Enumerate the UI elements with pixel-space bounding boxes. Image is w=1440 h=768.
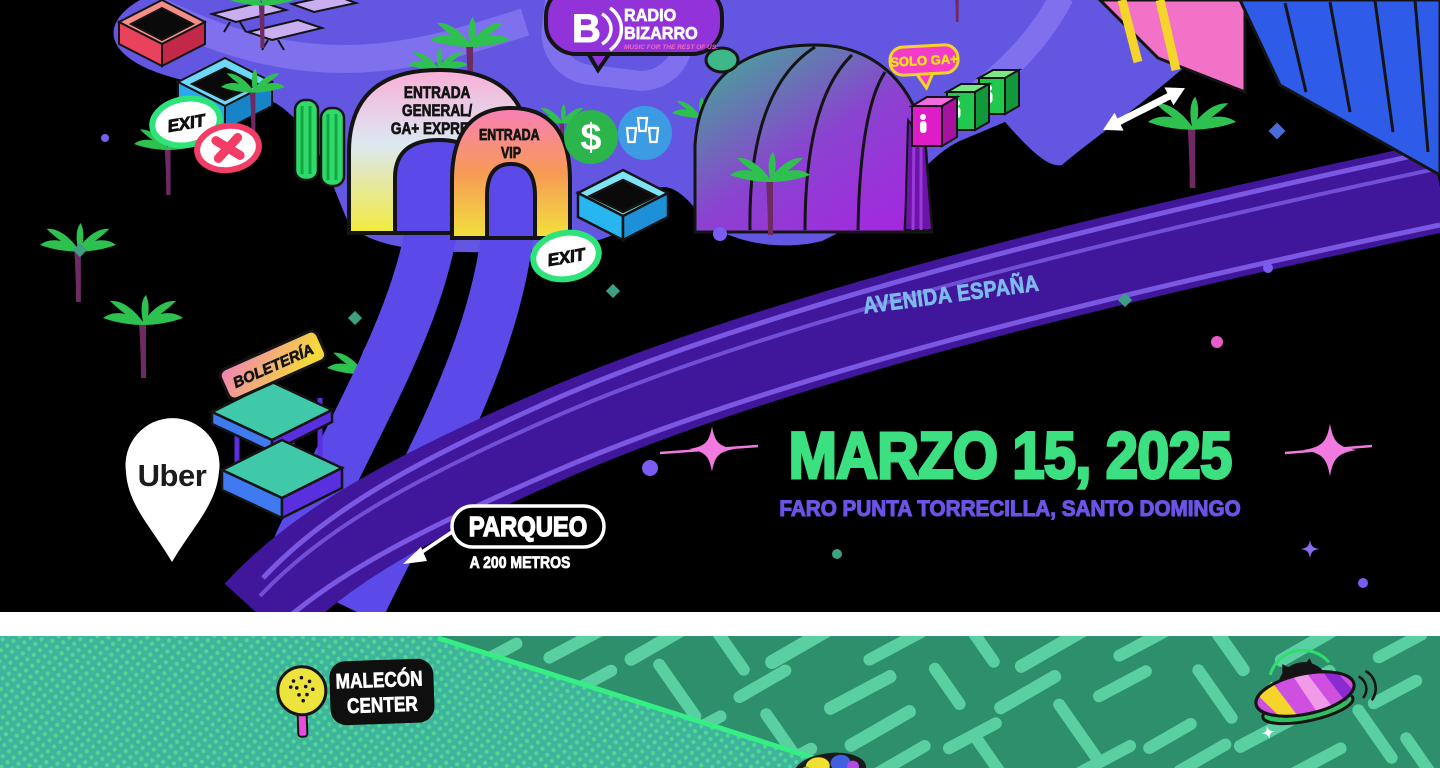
malecon-line2: CENTER (347, 693, 419, 718)
brand-name-line1: RADIO (624, 5, 676, 25)
sparkle-icon-right (1304, 424, 1357, 477)
drinks-icon (618, 106, 672, 160)
brand-logo-letter: B (572, 7, 601, 51)
svg-text:MARZO 15, 2025: MARZO 15, 2025 (789, 420, 1232, 493)
atm-icon: $ (564, 110, 618, 164)
entrance-vip-line1: ENTRADA (479, 126, 540, 144)
small-bubble (706, 48, 738, 72)
entrance-general-line2: GENERAL/ (402, 102, 473, 121)
entrance-general-line1: ENTRADA (404, 84, 470, 103)
entrance-arch-vip: ENTRADA VIP (452, 108, 570, 238)
brand-tagline: MUSIC FOR THE REST OF US. (624, 44, 718, 51)
sparkle-icon-left (689, 426, 735, 472)
boleteria-booth (212, 382, 342, 518)
brand-name-line2: BIZARRO (624, 23, 698, 43)
malecon-line1: MALECÓN (335, 667, 423, 694)
svg-text:FARO PUNTA TORRECILLA, SANTO D: FARO PUNTA TORRECILLA, SANTO DOMINGO (779, 495, 1240, 521)
city-map-strip: MALECÓN CENTER (0, 636, 1440, 768)
white-divider (0, 612, 1440, 636)
event-date: MARZO 15, 2025 (789, 420, 1232, 493)
svg-text:A 200 METROS: A 200 METROS (470, 554, 571, 572)
event-venue: FARO PUNTA TORRECILLA, SANTO DOMINGO (779, 495, 1240, 521)
event-date-block: MARZO 15, 2025 FARO PUNTA TORRECILLA, SA… (642, 420, 1372, 522)
svg-text:PARQUEO: PARQUEO (469, 510, 587, 542)
uber-label: Uber (138, 458, 207, 493)
uber-pin: Uber (126, 418, 220, 562)
parqueo-label: PARQUEO (469, 510, 587, 542)
night-scene: AVENIDA ESPAÑA ENTRADA GENERAL/ GA+ EXPR… (0, 0, 1440, 613)
atm-symbol: $ (580, 117, 601, 159)
festival-map-poster: AVENIDA ESPAÑA ENTRADA GENERAL/ GA+ EXPR… (0, 0, 1440, 768)
parqueo-distance-label: A 200 METROS (470, 554, 571, 572)
entrance-vip-line2: VIP (501, 144, 521, 162)
